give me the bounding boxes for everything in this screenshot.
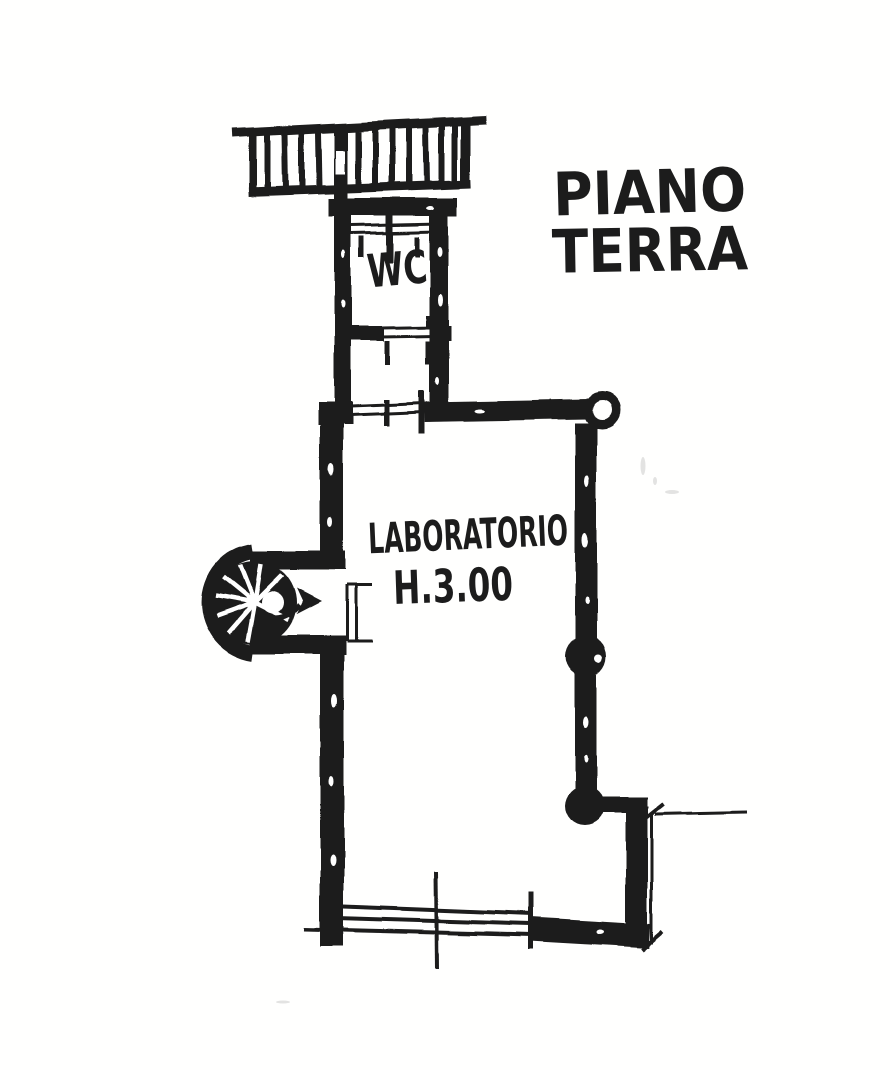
laboratory-height-note: H.3.00 [392,557,514,615]
floor-plan-drawing: PIANO TERRA WC LABORATORIO H.3.00 [0,0,890,1070]
spiral-staircase-bay [209,551,372,654]
window-line [337,918,531,924]
wc-room-label: WC [365,239,429,298]
corner-column-marker [588,397,616,425]
wc-entry-door-line [351,232,439,234]
lab-top-wall [424,409,588,412]
window-mullion-axis [436,872,437,968]
wc-divider-door-line [381,336,436,337]
dimension-extension-line [655,812,747,814]
bottom-wall [530,929,650,936]
stair-center-post-notch [336,150,345,174]
laboratory-walls [304,391,650,968]
dimension-lines [642,804,747,950]
spiral-staircase-icon [213,561,297,645]
window-line [331,906,533,914]
stair-treads [268,125,455,190]
plan-title-line2: TERRA [551,214,749,287]
laboratory-room-label: LABORATORIO [367,506,569,564]
wc-entry-door-line [351,224,441,226]
mid-column-notch [595,654,603,662]
wc-room-walls [329,207,458,420]
floor-plan-scan: PIANO TERRA WC LABORATORIO H.3.00 [0,0,890,1070]
external-staircase-hatch [231,120,487,198]
bay-door-opening [347,584,372,641]
